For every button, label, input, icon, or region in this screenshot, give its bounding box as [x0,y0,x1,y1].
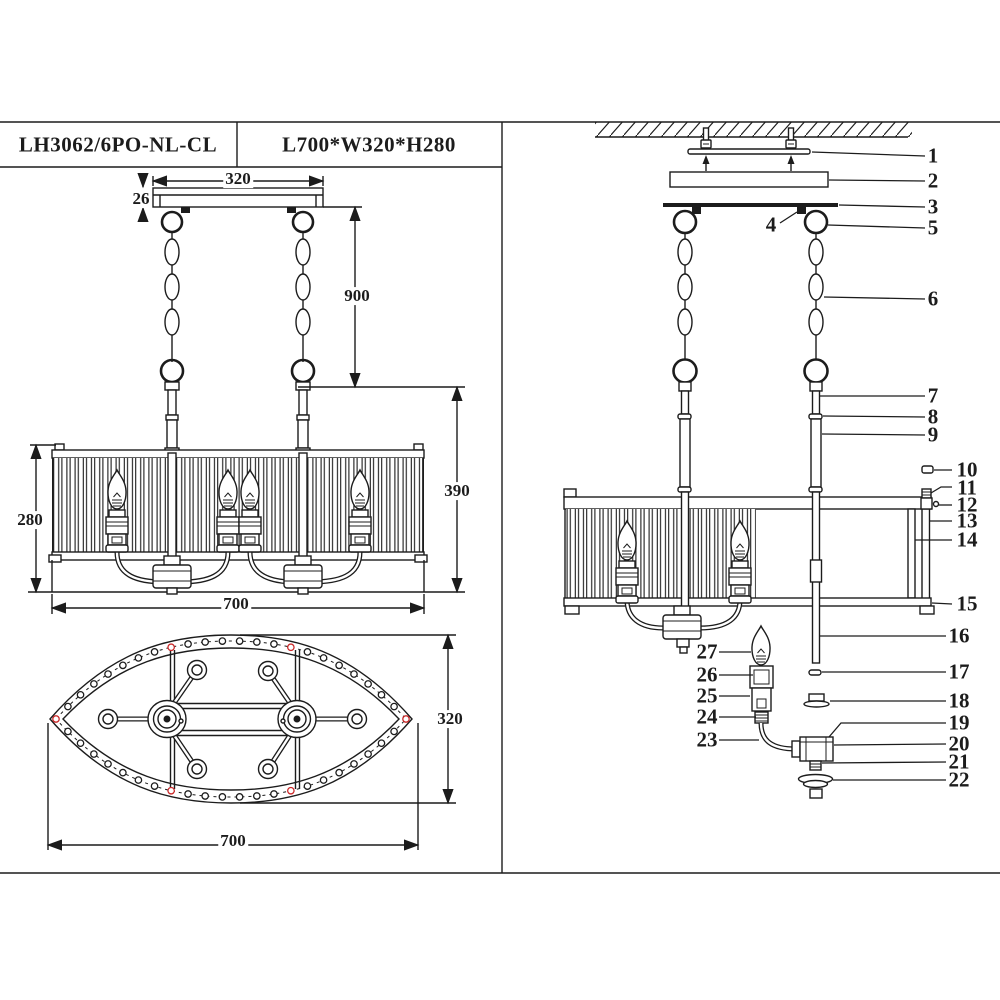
part-3-plate [663,203,838,207]
callout-26: 26 [697,665,718,686]
part-5-rings [674,211,827,233]
callout-9: 9 [928,425,939,446]
chains [161,212,314,382]
dim-canopy-width-label: 320 [223,170,253,188]
callout-24: 24 [697,707,718,728]
part-18-flange [804,694,829,707]
callout-14: 14 [957,530,978,551]
dim-canopy-height-label: 26 [131,190,152,208]
left-rod-lower [682,492,689,608]
callout-5: 5 [928,218,939,239]
part-22-finial [799,775,833,799]
part-1-mounting-bar [688,149,810,154]
part-21-screw [810,761,821,770]
part-2-canopy [670,172,828,187]
plan-arms [108,670,357,769]
callout-6: 6 [928,289,939,310]
callout-2: 2 [928,171,939,192]
part-11-12-corner-fitting [921,489,939,509]
callout-27: 27 [697,642,718,663]
dim-shade-height-label: 280 [15,511,45,529]
callout-22: 22 [949,770,970,791]
callout-15: 15 [957,594,978,615]
plan-hubs [148,701,316,738]
dim-body-height-label: 390 [442,482,472,500]
exploded-hub [663,606,701,653]
part-16-center-rod [811,492,822,663]
part-19-20-body [800,737,833,761]
callout-4: 4 [766,215,777,236]
dim-plan-length-label: 700 [218,832,248,850]
callout-16: 16 [949,626,970,647]
suspension-rods [165,382,310,454]
size-spec: L700*W320*H280 [282,133,456,158]
part-7-8-9-rods [678,382,822,492]
part-17-washer [809,670,821,675]
callout-25: 25 [697,686,718,707]
part-24-nipple [755,712,768,723]
callout-18: 18 [949,691,970,712]
callout-23: 23 [697,730,718,751]
callout-1: 1 [928,146,939,167]
part-13-frame-edge [922,509,930,598]
part-27-bulb [752,626,770,665]
ceiling [595,122,912,137]
callout-3: 3 [928,197,939,218]
exploded-view [564,122,952,798]
callout-19: 19 [949,713,970,734]
canopy-plate [153,188,323,213]
part-6-chains [674,233,828,383]
callout-17: 17 [949,662,970,683]
plan-view [48,635,456,850]
front-view [28,175,465,614]
part-10-clip [922,466,933,473]
dim-chain-length-label: 900 [342,287,372,305]
assembly-arrows [703,155,795,171]
model-number: LH3062/6PO-NL-CL [19,133,217,158]
front-hubs [153,556,322,594]
part-14-crystal-rod [908,509,915,598]
part-25-26-socket [750,666,773,711]
dim-shade-length-label: 700 [221,595,251,613]
technical-drawing-page: LH3062/6PO-NL-CL L700*W320*H280 320 26 9… [0,0,1000,1000]
part-23-arm [761,723,800,757]
part-4-hooks [692,207,806,214]
callout-7: 7 [928,386,939,407]
dim-plan-width-label: 320 [435,710,465,728]
